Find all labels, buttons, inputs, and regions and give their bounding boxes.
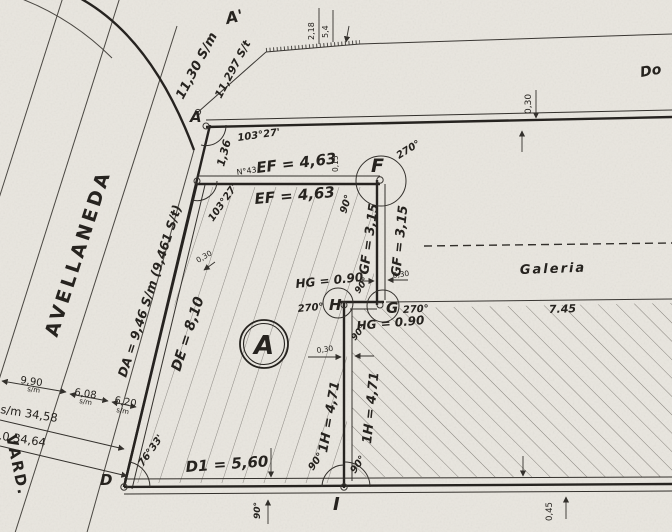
point-i-label: I xyxy=(333,494,340,515)
survey-plan-canvas: AVELLANEDA VARD. Do A' A D F G H I A 11,… xyxy=(0,0,672,532)
dim-top-small-2: 5,4 xyxy=(321,25,330,38)
angle-below-i: 90° xyxy=(253,502,263,519)
point-h-label: H xyxy=(329,296,342,314)
galeria-label: Galeria xyxy=(520,261,587,278)
parcel-a-letter: A xyxy=(252,331,274,361)
point-a-label: A xyxy=(189,108,202,126)
dim-top-small-1: 2,18 xyxy=(307,22,316,40)
angle-h-reflex: 270° xyxy=(297,302,324,315)
point-d-label: D xyxy=(100,471,112,489)
dim-bottom-045: 0,45 xyxy=(545,502,555,521)
plan-drawing: AVELLANEDA VARD. Do A' A D F G H I A 11,… xyxy=(0,0,672,532)
dim-top-wall-030: 0,30 xyxy=(524,94,534,114)
galeria-width: 7.45 xyxy=(549,302,577,316)
point-g-label: G xyxy=(386,299,398,317)
point-f-label: F xyxy=(371,155,384,177)
dim-ef-015: 0,15 xyxy=(331,155,340,172)
